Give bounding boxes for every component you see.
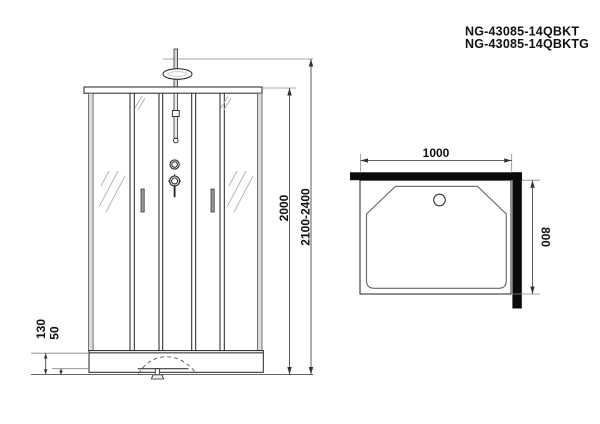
arrowhead-up-icon [309, 59, 313, 67]
glass-reflection-line [229, 171, 237, 186]
glass-reflection-line [135, 96, 142, 108]
dimension-tray-skirt: 50 [48, 326, 90, 374]
glass-reflection-line [234, 176, 253, 212]
glass-reflection-line [106, 176, 125, 212]
dimension-glass-height: 2000 [262, 88, 296, 375]
front-view: 130 50 2000 2100-2400 [31, 49, 313, 379]
drain-stem [155, 369, 159, 375]
arrowhead-down-icon [59, 371, 62, 374]
dimension-label-1000: 1000 [423, 146, 450, 160]
arrowhead-right-icon [504, 158, 512, 162]
arrowhead-down-icon [44, 369, 47, 374]
model-title: NG-43085-14QBKT NG-43085-14QBKTG [465, 25, 589, 52]
rail-end-knob [174, 138, 179, 143]
drain-hole-icon [434, 194, 446, 206]
shower-cabin-technical-drawing: NG-43085-14QBKT NG-43085-14QBKTG [0, 0, 600, 424]
dimension-label-130: 130 [34, 319, 48, 339]
frame-profile-left [89, 93, 94, 350]
model-number-line2: NG-43085-14QBKTG [465, 37, 589, 51]
side-wall-panel [512, 172, 521, 308]
arrowhead-down-icon [530, 287, 534, 295]
dimension-label-50: 50 [48, 326, 62, 340]
glass-reflection-line [138, 98, 145, 110]
dimension-label-800: 800 [539, 227, 553, 247]
rail-slider [172, 111, 179, 117]
dimension-width: 1000 [361, 146, 512, 172]
roof-bar [84, 87, 262, 93]
glass-reflection-line [99, 171, 118, 207]
shower-pipe [174, 49, 178, 87]
shower-column [168, 93, 181, 196]
glass-reflection-line [101, 171, 109, 186]
arrowhead-up-icon [287, 88, 291, 96]
glass-reflection-line [224, 98, 231, 110]
arrowhead-up-icon [530, 180, 534, 188]
drawing-canvas: NG-43085-14QBKT NG-43085-14QBKTG [0, 0, 600, 424]
dimension-label-2100-2400: 2100-2400 [299, 188, 313, 246]
dimension-total-height: 2100-2400 [299, 59, 314, 375]
top-view: 1000 800 [350, 146, 553, 309]
back-wall-panel [350, 172, 522, 180]
dimension-label-2000: 2000 [277, 194, 291, 221]
drain-foot [151, 375, 163, 379]
arrowhead-down-icon [309, 367, 313, 375]
shower-head-icon [163, 69, 192, 80]
glass-reflection-line [227, 171, 246, 207]
door-handle-right [211, 189, 214, 212]
arrowhead-down-icon [287, 367, 291, 375]
arrowhead-up-icon [44, 353, 47, 358]
arrowhead-left-icon [361, 158, 369, 162]
frame-profile-right [257, 93, 262, 350]
door-handle-left [141, 189, 144, 212]
